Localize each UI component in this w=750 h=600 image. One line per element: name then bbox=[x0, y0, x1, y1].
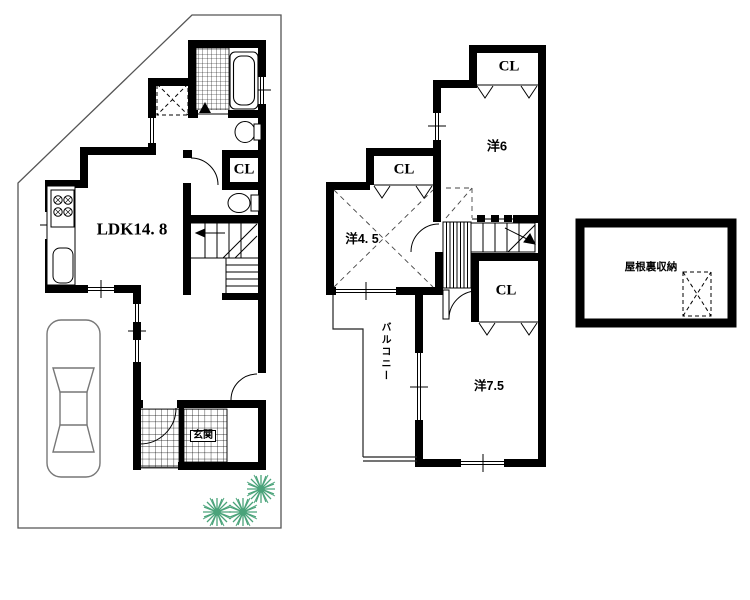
closet-label-1f: CL bbox=[234, 163, 255, 178]
kitchen-counter bbox=[47, 186, 75, 285]
floor-plan-page: LDK14. 8 CL 玄関 洋6 洋4. 5 洋7.5 CL CL CL バル… bbox=[0, 0, 750, 600]
room-label-west45: 洋4. 5 bbox=[345, 233, 378, 246]
toilet bbox=[228, 194, 259, 213]
attic-outline bbox=[580, 223, 732, 323]
bathtub bbox=[230, 52, 258, 109]
entrance-porch-tile bbox=[136, 409, 179, 467]
closet-label-2f-mid: CL bbox=[394, 163, 415, 178]
kitchen-stove bbox=[51, 190, 74, 227]
washbasin bbox=[235, 122, 261, 143]
room45-door-arc bbox=[411, 224, 439, 252]
entrance-label: 玄関 bbox=[190, 430, 216, 442]
bathroom-tile-floor bbox=[196, 48, 229, 110]
floor2-plan bbox=[326, 45, 546, 472]
attic-label: 屋根裏収納 bbox=[625, 262, 678, 273]
room-label-west75: 洋7.5 bbox=[474, 380, 504, 393]
front-door bbox=[258, 373, 266, 400]
closet-label-2f-top: CL bbox=[499, 60, 520, 75]
attic-plan bbox=[580, 223, 732, 323]
balcony-label: バルコニー bbox=[379, 322, 389, 382]
floor-plan-drawing bbox=[0, 0, 750, 600]
closet-label-2f-bottom: CL bbox=[496, 284, 517, 299]
floor2-walls bbox=[326, 45, 546, 467]
room-label-west6: 洋6 bbox=[487, 140, 507, 153]
room-label-ldk: LDK14. 8 bbox=[97, 221, 168, 238]
kitchen-sink bbox=[53, 248, 73, 283]
balcony-outline bbox=[333, 295, 417, 461]
